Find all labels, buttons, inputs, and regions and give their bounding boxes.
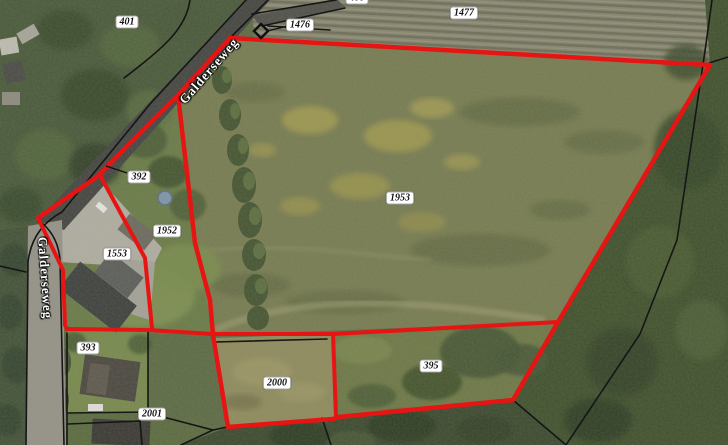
parcel-label-401: 401 — [116, 16, 139, 29]
parcel-label-400-clipped: 400 — [346, 0, 369, 5]
parcel-label-2000: 2000 — [263, 377, 291, 390]
parcel-label-1477: 1477 — [450, 7, 478, 20]
parcel-label-1476: 1476 — [286, 19, 314, 32]
parcel-label-393: 393 — [77, 342, 100, 355]
parcel-label-1553: 1553 — [103, 248, 131, 261]
parcel-label-1953: 1953 — [386, 192, 414, 205]
parcel-label-392: 392 — [128, 171, 151, 184]
aerial-map-canvas[interactable]: 401 400 1476 1477 392 1952 1553 1953 393… — [0, 0, 728, 445]
aerial-photo-layer — [0, 0, 728, 445]
parcel-label-1952: 1952 — [153, 225, 181, 238]
parcel-label-2001: 2001 — [138, 408, 166, 421]
parcel-label-395: 395 — [420, 360, 443, 373]
